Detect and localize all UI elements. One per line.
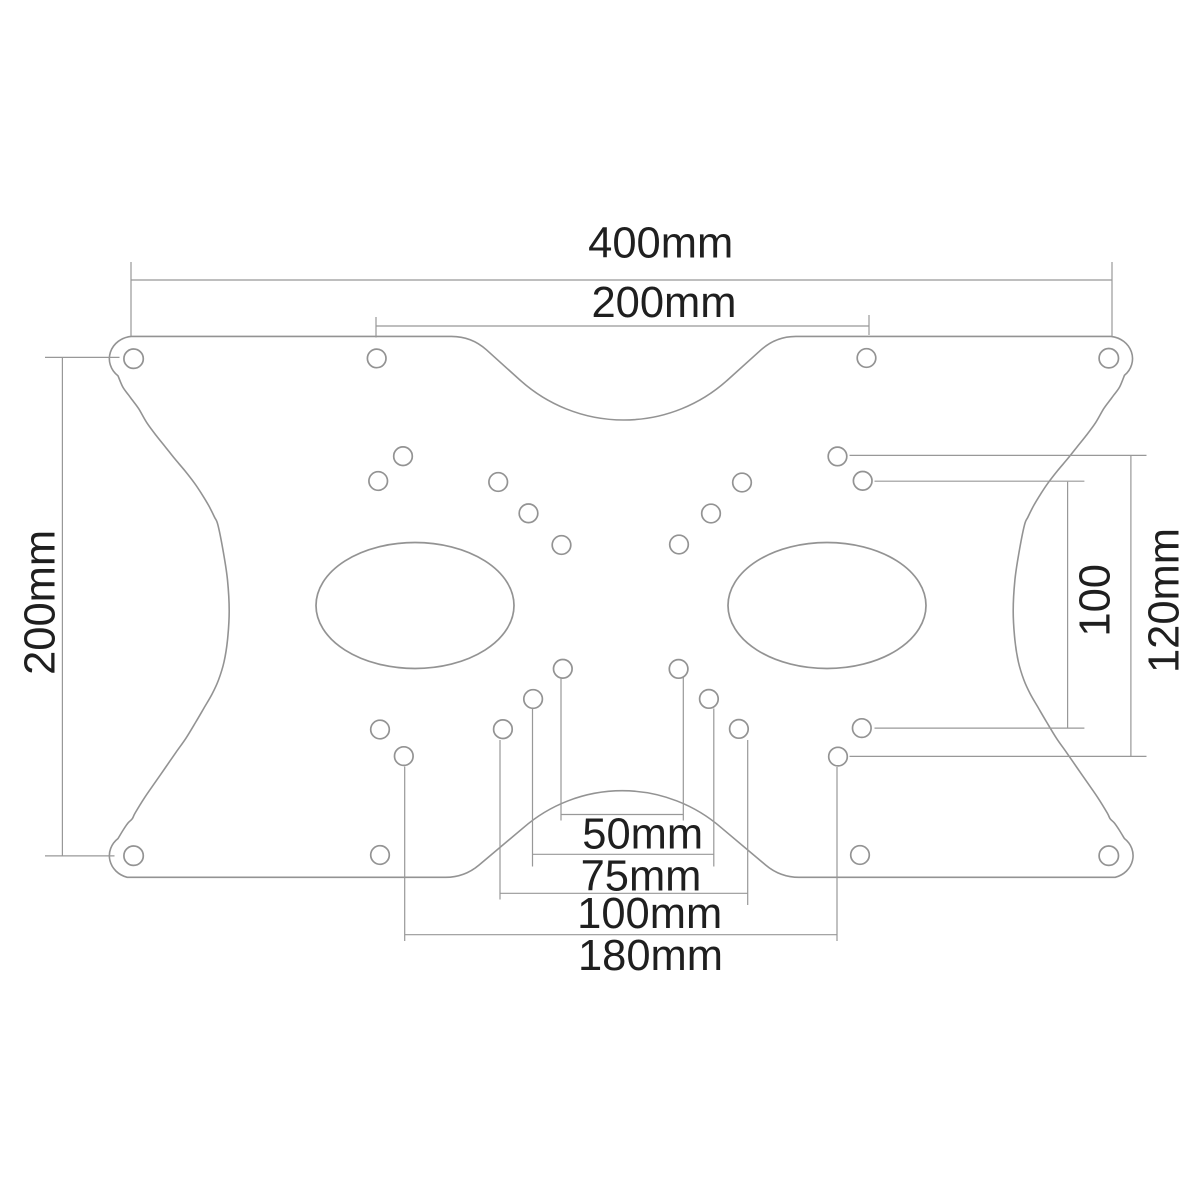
svg-text:50mm: 50mm xyxy=(582,811,703,859)
svg-text:120mm: 120mm xyxy=(1141,528,1189,673)
svg-text:100: 100 xyxy=(1072,564,1120,637)
svg-text:400mm: 400mm xyxy=(588,219,733,267)
svg-text:180mm: 180mm xyxy=(578,932,723,980)
svg-text:200mm: 200mm xyxy=(591,279,736,327)
svg-text:200mm: 200mm xyxy=(17,530,65,675)
svg-text:100mm: 100mm xyxy=(577,890,722,938)
